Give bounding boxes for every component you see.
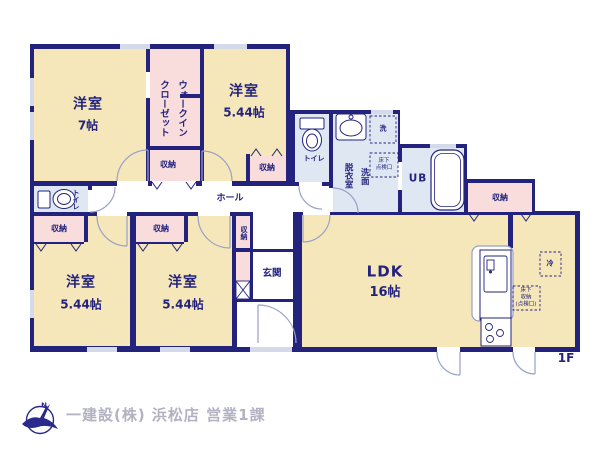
genkan-lower-floor [237,302,293,347]
label-fridge: 冷 [547,260,554,269]
label-bedroom7-name: 洋室 [73,96,103,114]
ufi-line2: 点検口 [376,165,393,172]
window [371,110,393,114]
window [430,144,456,148]
floor-label: 1F [548,351,584,365]
label-underfloor-storage: 床下 収納 (点検口) [516,287,537,308]
company-name: 一建設(株) 浜松店 営業1課 [66,404,266,425]
hall-stub-floor [253,186,293,249]
label-genkan: 玄関 [262,268,281,280]
room-bedroom7 [34,49,146,181]
label-bedroom544mid-name: 洋室 [168,274,198,292]
room-ldk [302,215,575,347]
window [214,44,247,49]
label-storage-mid: 収納 [153,224,169,234]
label-walkin-closet: ウォークイン クローゼット [154,58,190,158]
window [160,347,190,352]
label-unit-bath: UB [409,172,428,185]
label-bedroom544left-size: 5.44帖 [60,298,102,313]
floorplan-drawing [0,0,600,450]
window [30,78,34,106]
logo-letter-n: N [41,402,47,411]
label-bedroom544mid-size: 5.44帖 [162,298,204,313]
toilet-right-icon [300,118,324,151]
label-storage-top: 収納 [259,163,275,173]
stove-icon [481,318,511,346]
label-hall: ホール [216,193,243,204]
hall-floor [92,186,329,212]
toilet-left-icon [38,190,75,209]
label-washer: 洗 [380,125,387,134]
genkan-pink-strip [236,252,250,281]
wic-line2: クローゼット [154,58,172,158]
label-ldk-size: 16帖 [369,285,400,301]
washroom-line1: 洗面 [356,143,372,209]
front-door [250,347,292,352]
window [87,347,117,352]
label-bedroom544left-name: 洋室 [66,274,96,292]
label-storage-wic: 収納 [160,160,176,170]
window [120,44,150,49]
genkan-x-box [236,281,250,299]
washroom-line2: 脱衣室 [340,143,356,209]
label-bedroom544top-size: 5.44帖 [223,106,265,121]
label-storage-left: 収納 [51,224,67,234]
label-underfloor-inspection: 床下 点検口 [376,158,393,172]
label-washroom: 洗面 脱衣室 [340,143,372,209]
label-toilet-right: トイレ [304,155,325,164]
washbasin-icon [336,114,366,140]
window [30,290,34,318]
label-toilet-left: トイレ [71,188,81,211]
faucet-icon [487,260,494,270]
bathtub-icon [431,150,464,210]
label-bedroom544top-name: 洋室 [229,83,259,101]
label-storage-genkan: 収納 [239,221,249,245]
window [30,112,34,140]
label-bedroom7-size: 7帖 [78,119,98,134]
label-storage-ldk: 収納 [492,193,508,203]
ufs-line3: (点検口) [516,302,537,309]
floorplan-page: 洋室 7帖 洋室 5.44帖 洋室 5.44帖 洋室 5.44帖 LDK 16帖… [0,0,600,450]
label-ldk-name: LDK [367,263,404,282]
company-logo [22,404,58,434]
wic-line1: ウォークイン [172,58,190,158]
